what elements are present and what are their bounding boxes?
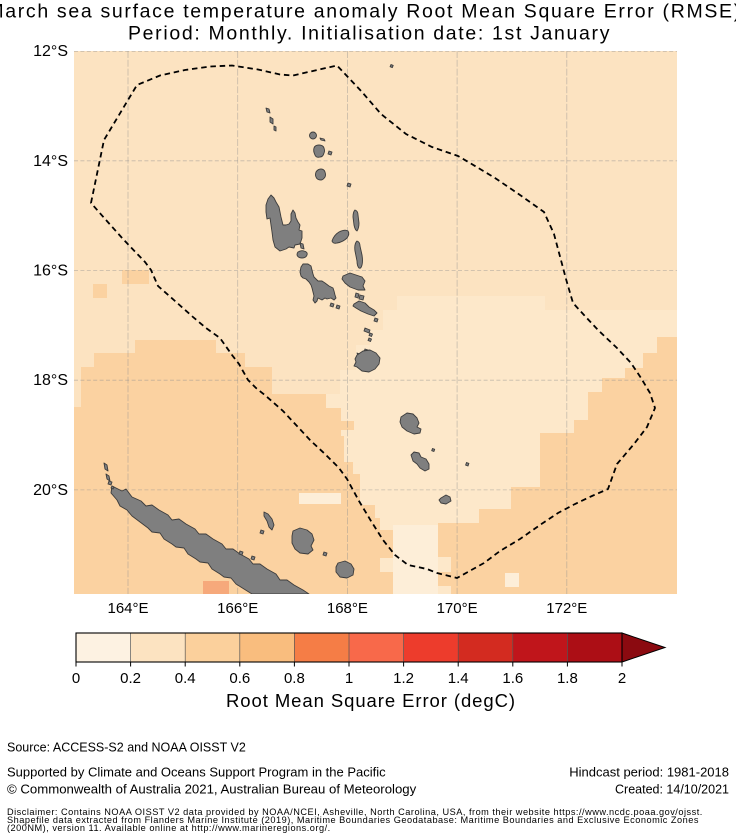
svg-text:1.2: 1.2 [393,670,414,687]
svg-text:16°S: 16°S [33,263,68,280]
svg-text:0.8: 0.8 [284,670,305,687]
svg-text:Root Mean Square Error (degC): Root Mean Square Error (degC) [226,690,516,711]
svg-text:1.6: 1.6 [502,670,523,687]
svg-text:1: 1 [345,670,353,687]
svg-text:1.8: 1.8 [557,670,578,687]
svg-text:Hindcast period: 1981-2018: Hindcast period: 1981-2018 [569,765,729,780]
svg-text:0: 0 [72,670,80,687]
svg-text:12°S: 12°S [33,43,68,60]
svg-text:1.4: 1.4 [448,670,469,687]
svg-text:(200NM), version 11. Available: (200NM), version 11. Available online at… [7,823,331,833]
svg-text:170°E: 170°E [437,600,478,617]
svg-text:Source: ACCESS-S2 and NOAA OIS: Source: ACCESS-S2 and NOAA OISST V2 [7,741,246,755]
svg-text:18°S: 18°S [33,372,68,389]
svg-text:0.2: 0.2 [120,670,141,687]
svg-text:March sea surface temperature: March sea surface temperature anomaly Ro… [0,0,736,22]
svg-text:166°E: 166°E [217,600,258,617]
svg-text:172°E: 172°E [546,600,587,617]
svg-text:2: 2 [618,670,626,687]
svg-text:Period: Monthly. Initialisatio: Period: Monthly. Initialisation date: 1s… [128,22,611,44]
svg-text:Created: 14/10/2021: Created: 14/10/2021 [615,783,729,797]
svg-text:© Commonwealth of Australia 20: © Commonwealth of Australia 2021, Austra… [7,782,417,797]
svg-text:20°S: 20°S [33,482,68,499]
svg-text:Supported by Climate and Ocean: Supported by Climate and Oceans Support … [7,765,386,780]
svg-text:14°S: 14°S [33,153,68,170]
svg-text:168°E: 168°E [327,600,368,617]
svg-text:0.6: 0.6 [229,670,250,687]
svg-text:164°E: 164°E [107,600,148,617]
svg-text:0.4: 0.4 [175,670,196,687]
